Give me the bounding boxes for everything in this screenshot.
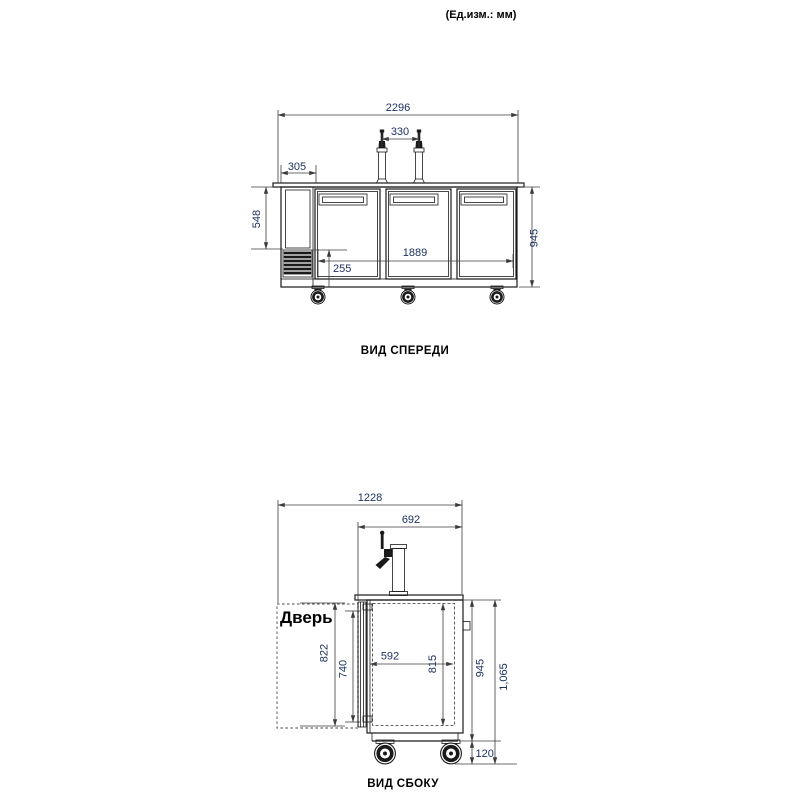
front-door-2 xyxy=(386,189,451,279)
front-view: 2296 330 305 548 945 1889 xyxy=(251,102,541,357)
door-handle xyxy=(319,194,367,205)
door-handle xyxy=(461,194,507,205)
dim-tap-spacing: 330 xyxy=(391,126,409,138)
vent-grille-icon xyxy=(283,250,312,277)
front-view-title: ВИД СПЕРЕДИ xyxy=(361,345,449,357)
side-body xyxy=(367,600,463,733)
dim-interior-height: 815 xyxy=(427,655,439,673)
door-label: Дверь xyxy=(280,608,333,627)
dim-tap-to-back: 692 xyxy=(402,514,420,526)
front-countertop xyxy=(273,183,524,187)
dim-door-height: 822 xyxy=(319,644,331,662)
side-dimensions: 1228 692 822 740 592 815 xyxy=(278,492,517,764)
technical-drawing: (Ед.изм.: мм) xyxy=(0,0,800,800)
drawing-page: (Ед.изм.: мм) xyxy=(0,0,800,800)
dim-front-body-height: 945 xyxy=(529,229,541,247)
dim-caster-height: 120 xyxy=(476,748,494,760)
interior-liner xyxy=(373,604,455,726)
dim-left-section-height: 548 xyxy=(251,210,263,228)
side-view: Дверь xyxy=(277,492,517,790)
side-view-title: ВИД СБОКУ xyxy=(367,778,439,790)
dim-overall-depth: 1228 xyxy=(358,492,382,504)
front-dimensions: 2296 330 305 548 945 1889 xyxy=(251,102,541,287)
front-cabinet xyxy=(273,130,524,305)
dim-left-section-width: 305 xyxy=(288,161,306,173)
dim-overall-width: 2296 xyxy=(386,102,410,114)
front-left-panel xyxy=(286,190,311,248)
thermostat-box xyxy=(463,622,470,631)
dim-interior-depth: 592 xyxy=(381,651,399,663)
dim-doors-width: 1889 xyxy=(403,247,427,259)
dim-door-inner-height: 740 xyxy=(338,660,350,678)
units-note: (Ед.изм.: мм) xyxy=(446,9,517,21)
side-countertop xyxy=(355,595,463,600)
front-body xyxy=(281,187,517,287)
dim-grille-height: 255 xyxy=(333,263,351,275)
dim-side-body-height: 945 xyxy=(475,659,487,677)
side-cabinet: Дверь xyxy=(277,531,470,764)
tap-tower-icon xyxy=(376,531,408,596)
door-handle xyxy=(390,194,438,205)
dim-overall-height: 1,065 xyxy=(498,663,510,691)
front-door-3 xyxy=(457,189,516,279)
